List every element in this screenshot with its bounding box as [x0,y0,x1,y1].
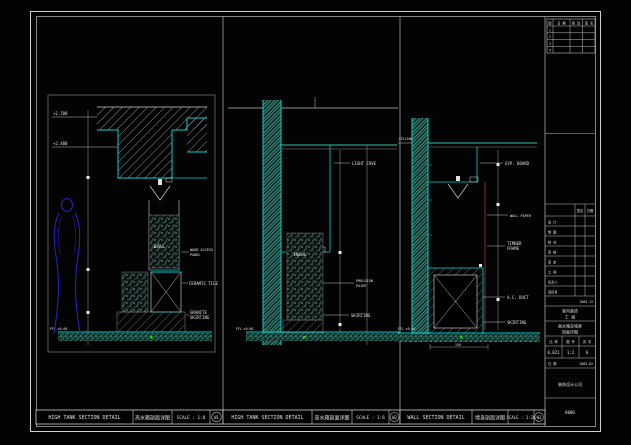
svg-text:SKIRTING: SKIRTING [507,320,527,325]
svg-text:4: 4 [549,49,551,53]
svg-text:SKIRTING: SKIRTING [190,315,210,320]
level-leader-1: +2.700 [52,111,97,117]
svg-text:比 例: 比 例 [549,339,557,344]
svg-text:6.021: 6.021 [547,350,560,355]
panel-title-cn: 墙身剖面详图 [475,415,505,422]
dimension-line-vertical [339,150,342,342]
title-block: 版 日 期 修 改 签 名 1 2 3 4 签名 日期 设 计 [545,19,595,415]
detail-ref: W1 [214,415,219,420]
detail-ref: W2 [392,415,397,420]
svg-text:1:2: 1:2 [567,350,575,355]
level-label-1: +2.700 [53,111,68,116]
panel-wall-section: CEILING [398,118,540,350]
svg-text:图 号: 图 号 [566,339,574,344]
cad-canvas: +2.700 +2.400 INSUL [0,0,631,445]
sheet-border [31,12,601,432]
detail-ref: W3 [537,415,542,420]
svg-text:修 改: 修 改 [572,21,581,26]
person-silhouette [54,199,80,334]
callout-duct: A.C. DUCT [483,295,529,300]
dimension-line-vertical [497,150,500,330]
svg-text:A.C. DUCT: A.C. DUCT [507,295,529,300]
titlebar-panel-1: HIGH TANK SECTION DETAIL 高水箱剖面详图 SCALE :… [36,410,223,424]
titlebar-panel-3: WALL SECTION DETAIL 墙身剖面详图 SCALE : 1:10 … [400,410,545,424]
duct-section-symbol [151,272,181,312]
svg-text:剖面详图: 剖面详图 [562,329,578,335]
callout-timber: TIMBER FRAME [487,241,522,251]
serial-number: 0000 [565,410,575,415]
scale-label: SCALE : 1:8 [177,415,206,421]
level-leader-2: +2.400 [52,141,118,147]
svg-text:2: 2 [549,35,551,39]
date-row: 日 期 2005.02 [548,361,593,366]
callout-skirting-2: SKIRTING [323,313,371,318]
plinth-hatch [283,320,323,333]
svg-text:审 定: 审 定 [548,260,557,265]
callout-cove: LIGHT COVE [334,161,377,166]
downlight-icon [448,176,468,198]
svg-text:负责人: 负责人 [548,280,558,285]
svg-text:150: 150 [455,343,461,347]
insulation-fill-upper [149,215,179,268]
svg-text:GYP. BOARD: GYP. BOARD [505,161,530,166]
panel-title: HIGH TANK SECTION DETAIL [48,415,120,421]
dimension-line-vertical [87,110,90,345]
insulation-label: INSUL [293,252,307,258]
svg-text:制 图: 制 图 [548,230,556,235]
signature-rows: 签名 日期 设 计 制 图 校 对 审 核 审 定 工 种 负责人 项目号 [545,204,595,296]
svg-text:WALL PAPER: WALL PAPER [510,214,532,218]
panel-high-tank-2: INSUL FFL ±0.00 LIGHT COVE EMULSION PAIN… [228,97,400,345]
project-name-cell: 室内装饰 工 程 [562,308,578,320]
callout-gyp: GYP. BOARD [480,161,530,166]
svg-text:工 种: 工 种 [548,270,556,275]
revision-table: 版 日 期 修 改 签 名 1 2 3 4 [547,19,595,53]
svg-text:日 期: 日 期 [548,361,556,366]
svg-text:日期: 日期 [587,208,593,213]
svg-text:EMULSION: EMULSION [356,279,373,283]
svg-text:日 期: 日 期 [557,21,565,26]
svg-text:FRAME: FRAME [507,246,520,251]
panel-title-cn: 高水箱剖面详图 [135,415,170,422]
svg-text:WOOD ACCESS: WOOD ACCESS [190,248,213,252]
svg-text:CEILING: CEILING [399,137,413,141]
svg-text:PANEL: PANEL [190,253,201,257]
callout-wallpaper: WALL PAPER [487,214,532,218]
concrete-hatch-mass [97,107,207,178]
callout-paint: EMULSION PAINT [323,279,373,288]
note-text: 2005.12 [580,300,594,304]
callout-wood-panel: WOOD ACCESS PANEL [181,248,213,257]
callout-skirting-1: GRANITE SKIRTING [186,310,210,320]
scale-label: SCALE : 1:10 [507,415,536,420]
svg-text:签名: 签名 [577,208,583,213]
panel-high-tank-1: +2.700 +2.400 INSUL [48,95,218,352]
ffl-label: FFL ±0.00 [50,327,67,331]
svg-text:SKIRTING: SKIRTING [351,313,371,318]
callout-tile: CERAMIC TILE [182,281,218,286]
duct-section-symbol [428,264,483,335]
svg-text:工 程: 工 程 [565,314,575,320]
svg-text:LIGHT COVE: LIGHT COVE [352,161,377,166]
plinth-hatch [117,312,185,332]
cad-drawing-sheet: +2.700 +2.400 INSUL [0,0,631,445]
company-name: 装饰设计公司 [558,381,582,387]
wall-hatch-column [263,100,281,345]
scale-label: SCALE : 1:8 [356,415,385,421]
level-label-2: +2.400 [53,141,68,146]
svg-text:项目号: 项目号 [548,290,558,295]
ffl-label: FFL ±0.00 [236,327,253,331]
svg-text:高水箱及墙身: 高水箱及墙身 [558,323,582,329]
svg-text:2005.02: 2005.02 [580,362,594,366]
svg-text:PAINT: PAINT [356,284,367,288]
svg-text:CERAMIC TILE: CERAMIC TILE [189,281,218,286]
svg-text:设 计: 设 计 [548,220,557,225]
svg-text:版: 版 [548,21,552,26]
floor-finish-hatch [398,333,540,342]
scale-number-cells: 比 例 图 号 页 次 6.021 1:2 6 [545,336,595,358]
panel-title-cn: 高水箱剖面详图 [314,415,349,422]
svg-text:3: 3 [549,42,551,46]
floor-finish-hatch [246,332,400,341]
insulation-fill-lower [122,272,148,312]
insulation-label: INSUL [153,244,166,249]
svg-text:校 对: 校 对 [548,240,557,245]
insulation-fill [287,233,323,320]
panel-title: HIGH TANK SECTION DETAIL [231,415,303,421]
ffl-label: FFL ±0.00 [398,327,415,331]
panel-title: WALL SECTION DETAIL [407,415,464,421]
svg-text:6: 6 [586,350,589,355]
callout-skirting-3: SKIRTING [483,320,527,325]
svg-text:1: 1 [549,28,551,32]
svg-text:页 次: 页 次 [583,339,592,344]
floor-finish-hatch [58,332,212,341]
drawing-name-cell: 高水箱及墙身 剖面详图 [558,323,582,335]
svg-text:室内装饰: 室内装饰 [562,308,578,314]
titlebar-panel-2: HIGH TANK SECTION DETAIL 高水箱剖面详图 SCALE :… [223,410,400,424]
dimension-line-bottom: 150 [430,343,488,350]
svg-text:审 核: 审 核 [548,250,557,255]
svg-text:签 名: 签 名 [585,21,593,26]
